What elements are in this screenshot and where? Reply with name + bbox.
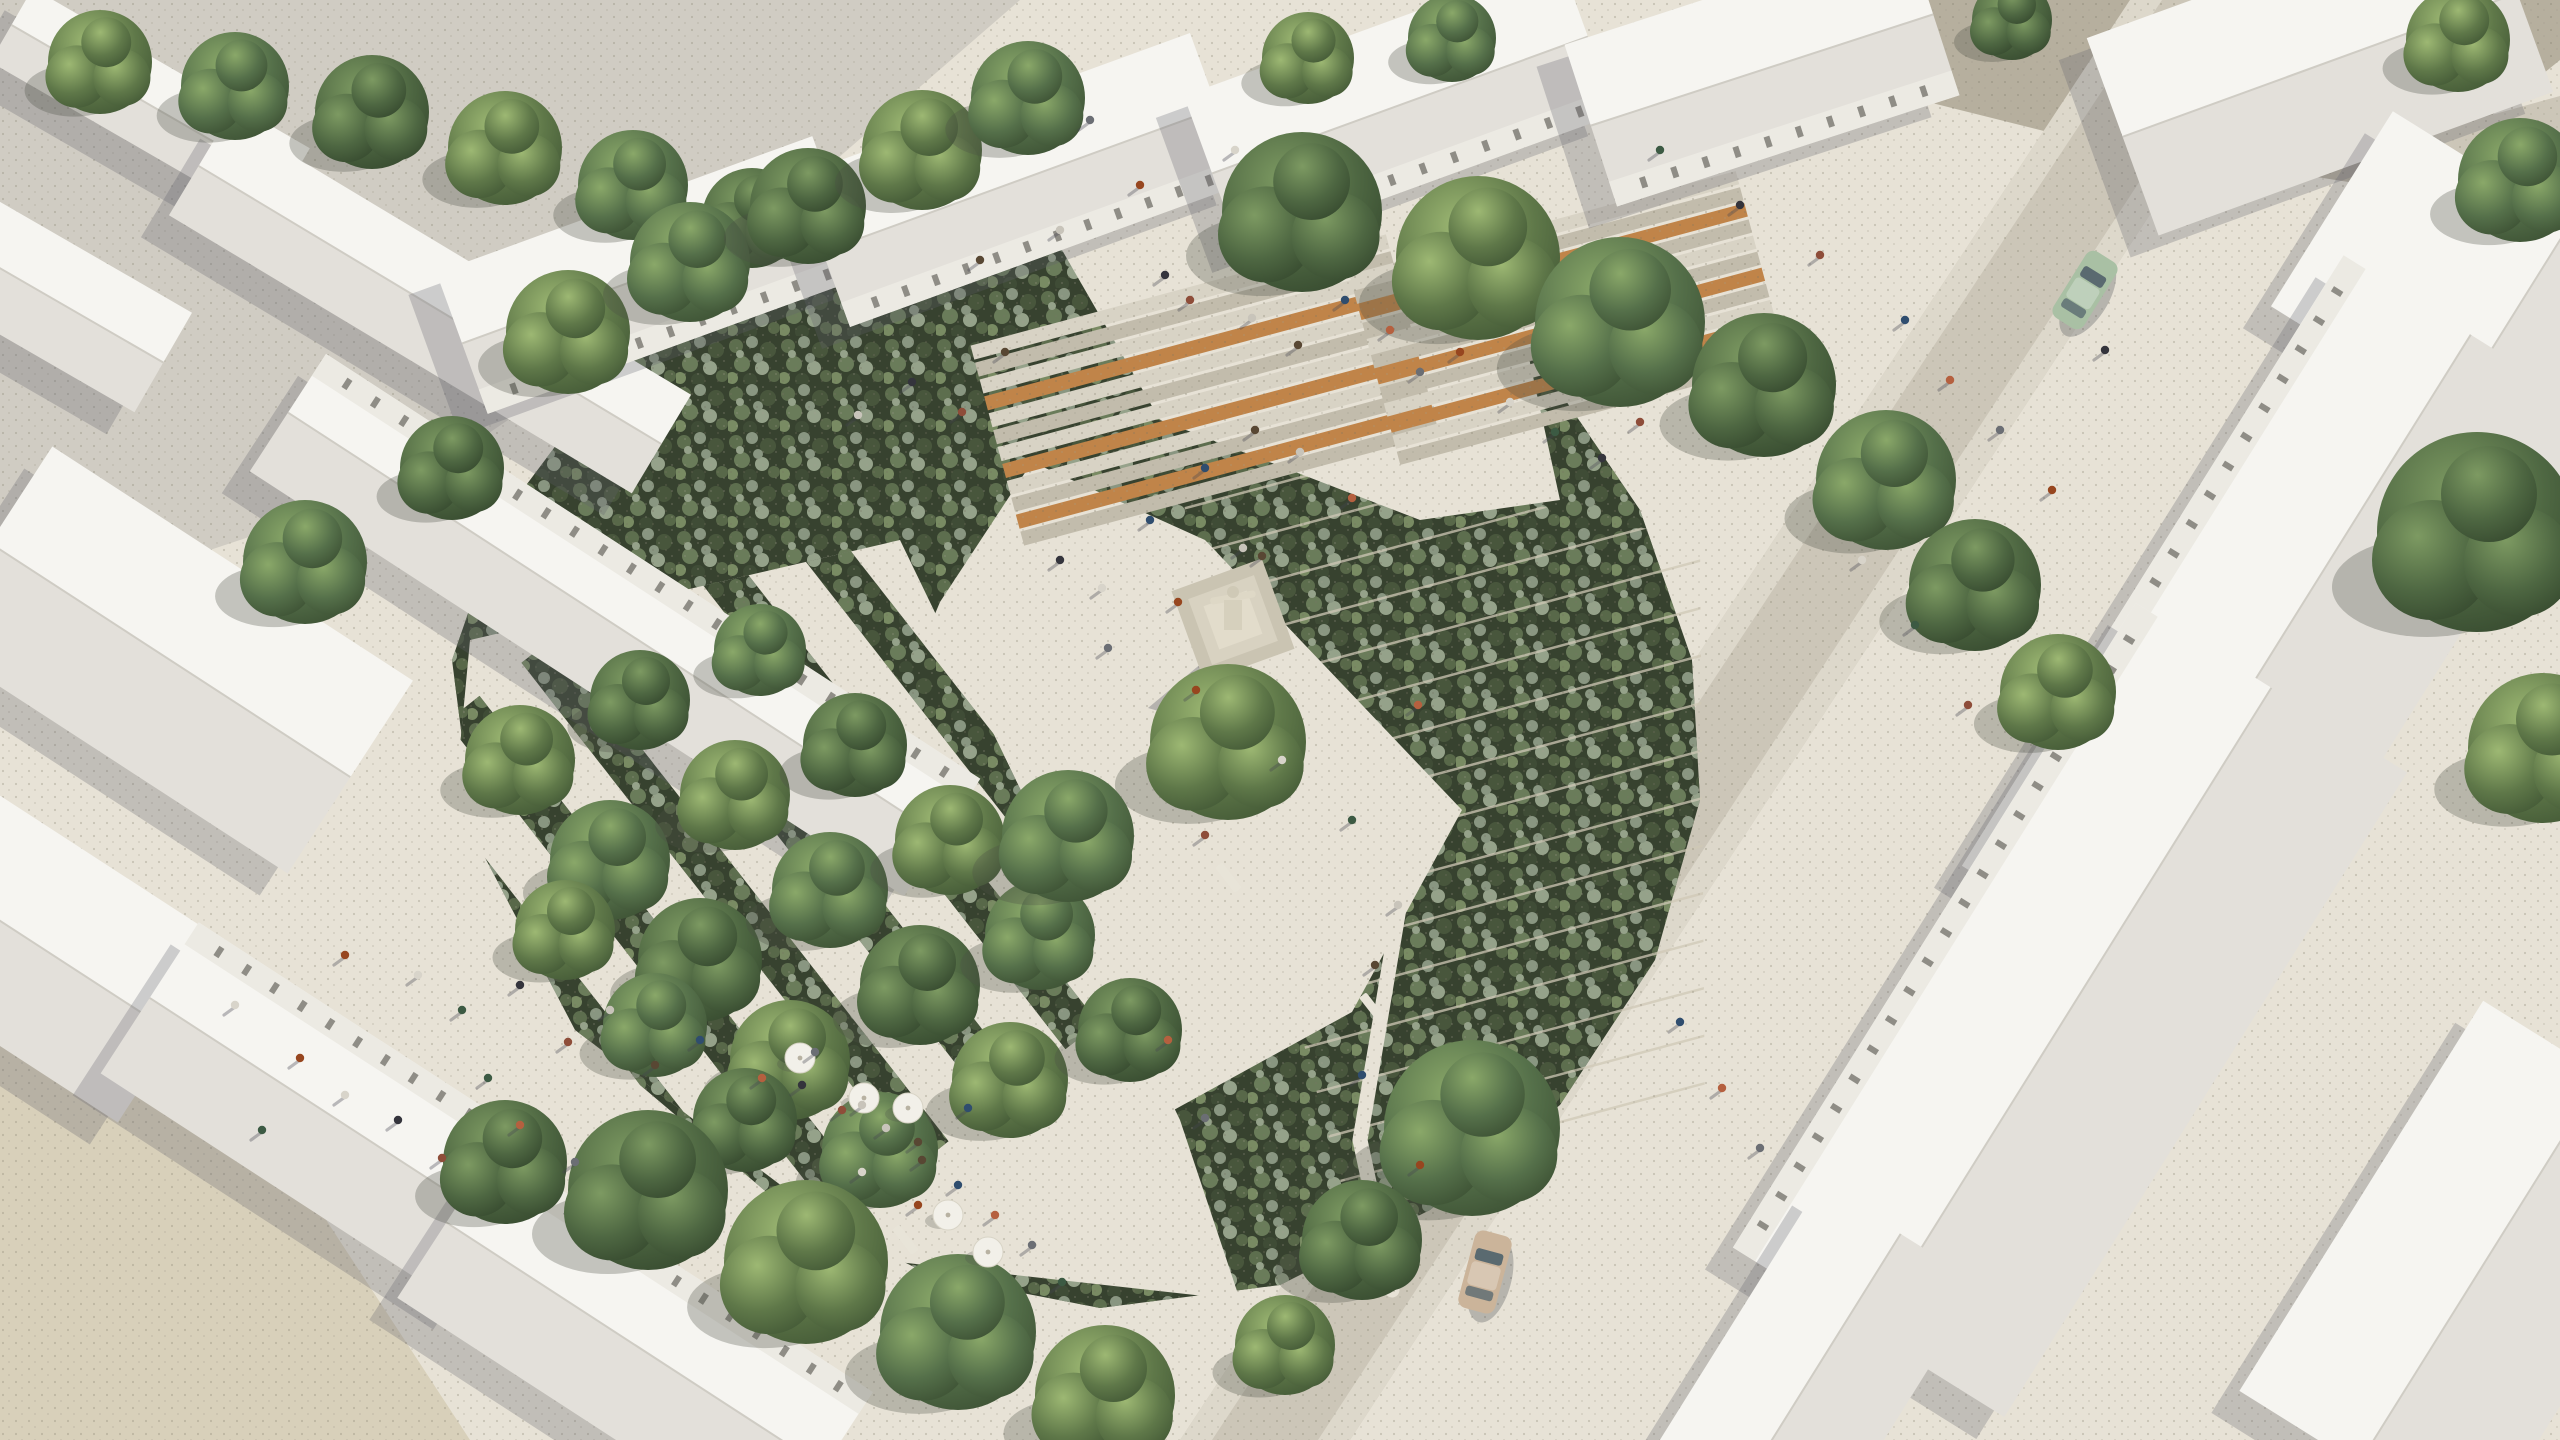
person-dot: [1551, 428, 1559, 436]
person-dot: [1296, 448, 1304, 456]
person-dot: [964, 1104, 972, 1112]
person-dot: [341, 1091, 349, 1099]
person-dot: [606, 1006, 614, 1014]
person-dot: [1506, 398, 1514, 406]
tree-canopy-lobe: [776, 1191, 855, 1270]
person-dot: [341, 951, 349, 959]
person-dot: [1104, 644, 1112, 652]
person-dot: [1858, 556, 1866, 564]
tree-canopy-lobe: [1291, 18, 1335, 62]
tree-canopy-lobe: [898, 933, 956, 991]
tree-canopy-lobe: [678, 907, 738, 967]
tree-canopy-lobe: [283, 509, 343, 569]
person-dot: [1996, 426, 2004, 434]
person-dot: [258, 1126, 266, 1134]
person-dot: [1416, 1161, 1424, 1169]
person-dot: [1146, 516, 1154, 524]
person-dot: [798, 1081, 806, 1089]
umbrella-pole: [862, 1096, 867, 1101]
tree-canopy-lobe: [930, 1265, 1005, 1340]
person-dot: [1718, 1084, 1726, 1092]
tree-canopy-lobe: [787, 156, 843, 212]
umbrella-pole: [946, 1213, 951, 1218]
tree-canopy-lobe: [1111, 985, 1161, 1035]
person-dot: [1946, 376, 1954, 384]
person-dot: [1416, 368, 1424, 376]
render-canvas: [0, 0, 2560, 1440]
person-dot: [1258, 552, 1266, 560]
aerial-architectural-render: [0, 0, 2560, 1440]
person-dot: [1348, 494, 1356, 502]
tree-canopy-lobe: [1200, 675, 1275, 750]
person-dot: [296, 1054, 304, 1062]
tree-canopy-lobe: [836, 700, 886, 750]
person-dot: [1598, 454, 1606, 462]
person-dot: [858, 1101, 866, 1109]
person-dot: [2101, 346, 2109, 354]
person-dot: [1186, 296, 1194, 304]
person-dot: [1294, 341, 1302, 349]
tree-canopy-lobe: [1861, 420, 1928, 487]
person-dot: [231, 1001, 239, 1009]
tree-canopy-lobe: [351, 63, 406, 118]
person-dot: [1001, 348, 1009, 356]
person-dot: [484, 1074, 492, 1082]
person-dot: [1201, 1114, 1209, 1122]
person-dot: [1192, 686, 1200, 694]
person-dot: [811, 1048, 819, 1056]
person-dot: [516, 1121, 524, 1129]
person-dot: [1901, 316, 1909, 324]
tree-canopy-lobe: [1273, 143, 1350, 220]
person-dot: [458, 1006, 466, 1014]
tree-canopy-lobe: [1267, 1302, 1315, 1350]
monument-statue-body: [1224, 600, 1242, 630]
person-dot: [1164, 1036, 1172, 1044]
tree-canopy-lobe: [1589, 249, 1671, 331]
tree-canopy-lobe: [500, 713, 553, 766]
tree-canopy-lobe: [1440, 1052, 1524, 1136]
person-dot: [1058, 1278, 1066, 1286]
person-dot: [1278, 756, 1286, 764]
tree-canopy-lobe: [81, 17, 131, 67]
person-dot: [1248, 314, 1256, 322]
tree-canopy-lobe: [1340, 1188, 1398, 1246]
tree-canopy-lobe: [622, 657, 670, 705]
person-dot: [1358, 1071, 1366, 1079]
person-dot: [1086, 116, 1094, 124]
tree-canopy-lobe: [715, 748, 768, 801]
tree-canopy-lobe: [547, 887, 595, 935]
tree-canopy-lobe: [484, 99, 539, 154]
person-dot: [838, 1106, 846, 1114]
person-dot: [908, 378, 916, 386]
tree-canopy-lobe: [726, 1075, 776, 1125]
person-dot: [1341, 296, 1349, 304]
tree-canopy-lobe: [1080, 1335, 1147, 1402]
tree-canopy-lobe: [1436, 0, 1478, 42]
person-dot: [1414, 701, 1422, 709]
person-dot: [1098, 584, 1106, 592]
person-dot: [1201, 831, 1209, 839]
tree-canopy-lobe: [546, 279, 606, 339]
person-dot: [394, 1116, 402, 1124]
person-dot: [914, 1201, 922, 1209]
person-dot: [1251, 426, 1259, 434]
person-dot: [991, 1211, 999, 1219]
person-dot: [1456, 348, 1464, 356]
tree-canopy-lobe: [2441, 446, 2537, 542]
person-dot: [1911, 621, 1919, 629]
person-dot: [564, 1038, 572, 1046]
tree-canopy-lobe: [433, 423, 483, 473]
tree-canopy-lobe: [1738, 323, 1807, 392]
person-dot: [1056, 556, 1064, 564]
person-dot: [696, 1036, 704, 1044]
umbrella-pole: [798, 1056, 803, 1061]
person-dot: [571, 1158, 579, 1166]
person-dot: [1348, 816, 1356, 824]
person-dot: [516, 981, 524, 989]
tree-canopy-lobe: [483, 1109, 543, 1169]
tree-canopy-lobe: [989, 1030, 1045, 1086]
person-dot: [1964, 701, 1972, 709]
tree-canopy-lobe: [613, 138, 666, 191]
tree-canopy-lobe: [1448, 187, 1527, 266]
tree-canopy-lobe: [743, 610, 787, 654]
tree-canopy-lobe: [619, 1121, 696, 1198]
person-dot: [758, 1074, 766, 1082]
person-dot: [1028, 1241, 1036, 1249]
person-dot: [1239, 544, 1247, 552]
person-dot: [2048, 486, 2056, 494]
person-dot: [1636, 418, 1644, 426]
person-dot: [1676, 1018, 1684, 1026]
person-dot: [438, 1154, 446, 1162]
person-dot: [1736, 201, 1744, 209]
tree-canopy-lobe: [1044, 779, 1107, 842]
tree-canopy-lobe: [930, 793, 983, 846]
person-dot: [1656, 146, 1664, 154]
person-dot: [882, 1124, 890, 1132]
tree-canopy-lobe: [1951, 528, 2014, 591]
person-dot: [1816, 251, 1824, 259]
person-dot: [1231, 146, 1239, 154]
person-dot: [651, 1061, 659, 1069]
person-dot: [976, 256, 984, 264]
person-dot: [414, 971, 422, 979]
person-dot: [954, 1181, 962, 1189]
person-dot: [1394, 901, 1402, 909]
umbrella-pole: [906, 1106, 911, 1111]
tree-canopy-lobe: [668, 210, 726, 268]
person-dot: [1386, 326, 1394, 334]
person-dot: [1371, 961, 1379, 969]
tree-canopy-lobe: [636, 980, 686, 1030]
person-dot: [854, 411, 862, 419]
tree-canopy-lobe: [2037, 642, 2093, 698]
person-dot: [918, 1156, 926, 1164]
person-dot: [1056, 226, 1064, 234]
person-dot: [1136, 181, 1144, 189]
tree-canopy-lobe: [2498, 127, 2558, 187]
person-dot: [1161, 271, 1169, 279]
person-dot: [958, 408, 966, 416]
tree-canopy-lobe: [809, 840, 865, 896]
person-dot: [858, 1168, 866, 1176]
person-dot: [1201, 464, 1209, 472]
person-dot: [914, 1138, 922, 1146]
tree-canopy-lobe: [216, 40, 268, 92]
person-dot: [1174, 598, 1182, 606]
tree-canopy-lobe: [588, 808, 646, 866]
person-dot: [1756, 1144, 1764, 1152]
monument-statue-top: [1227, 586, 1239, 598]
umbrella-pole: [986, 1250, 991, 1255]
tree-canopy-lobe: [1007, 49, 1062, 104]
